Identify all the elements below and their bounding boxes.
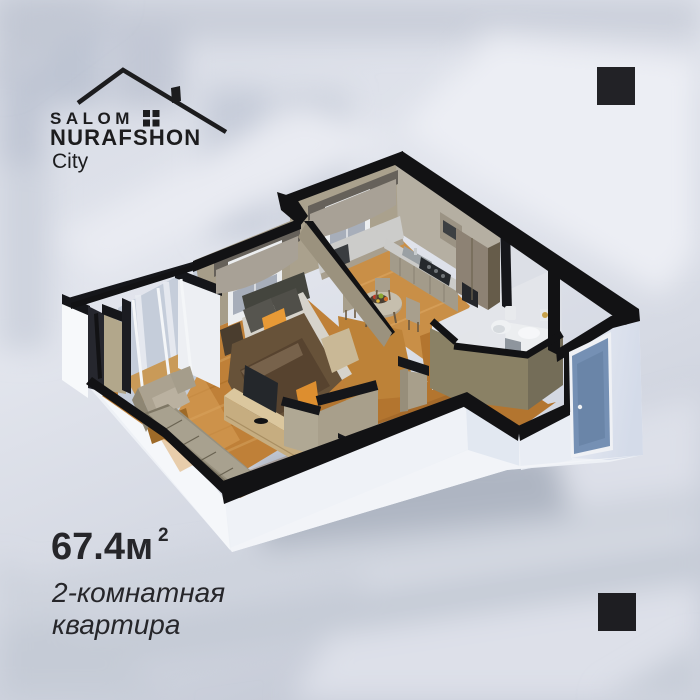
svg-text:City: City [52, 150, 89, 173]
svg-text:NURAFSHON: NURAFSHON [50, 125, 201, 150]
svg-text:квартира: квартира [52, 609, 180, 640]
svg-text:2: 2 [158, 525, 169, 546]
svg-text:67.4м: 67.4м [51, 526, 153, 568]
svg-text:2-комнатная: 2-комнатная [51, 577, 225, 608]
